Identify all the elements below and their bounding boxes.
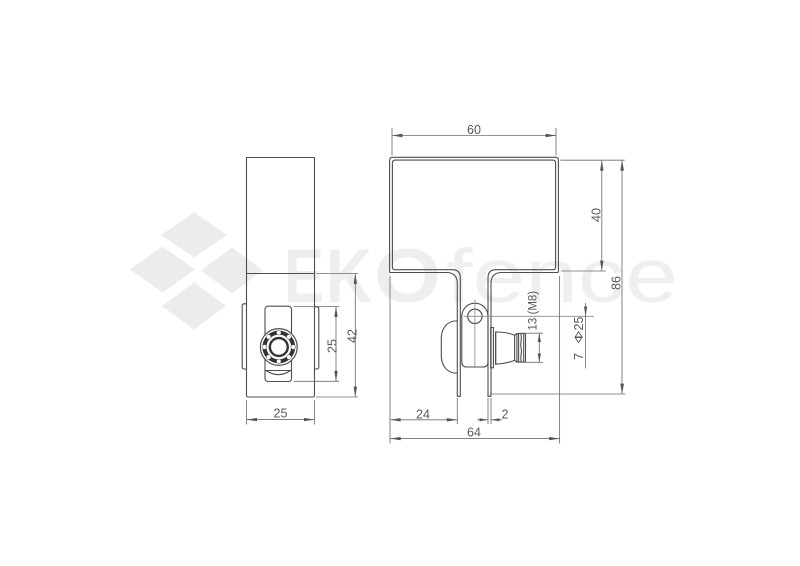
svg-text:25: 25 — [274, 407, 288, 421]
svg-text:fence: fence — [446, 234, 678, 319]
svg-text:25: 25 — [326, 339, 340, 353]
svg-text:O: O — [374, 234, 441, 319]
svg-text:24: 24 — [416, 408, 430, 422]
svg-text:25: 25 — [572, 317, 586, 331]
svg-text:64: 64 — [467, 426, 481, 440]
svg-text:42: 42 — [346, 329, 360, 343]
svg-text:13 (M8): 13 (M8) — [528, 291, 540, 331]
svg-text:86: 86 — [610, 276, 624, 290]
svg-text:2: 2 — [502, 408, 509, 422]
svg-text:60: 60 — [467, 123, 481, 137]
svg-text:40: 40 — [590, 208, 604, 222]
svg-text:7: 7 — [572, 353, 586, 360]
